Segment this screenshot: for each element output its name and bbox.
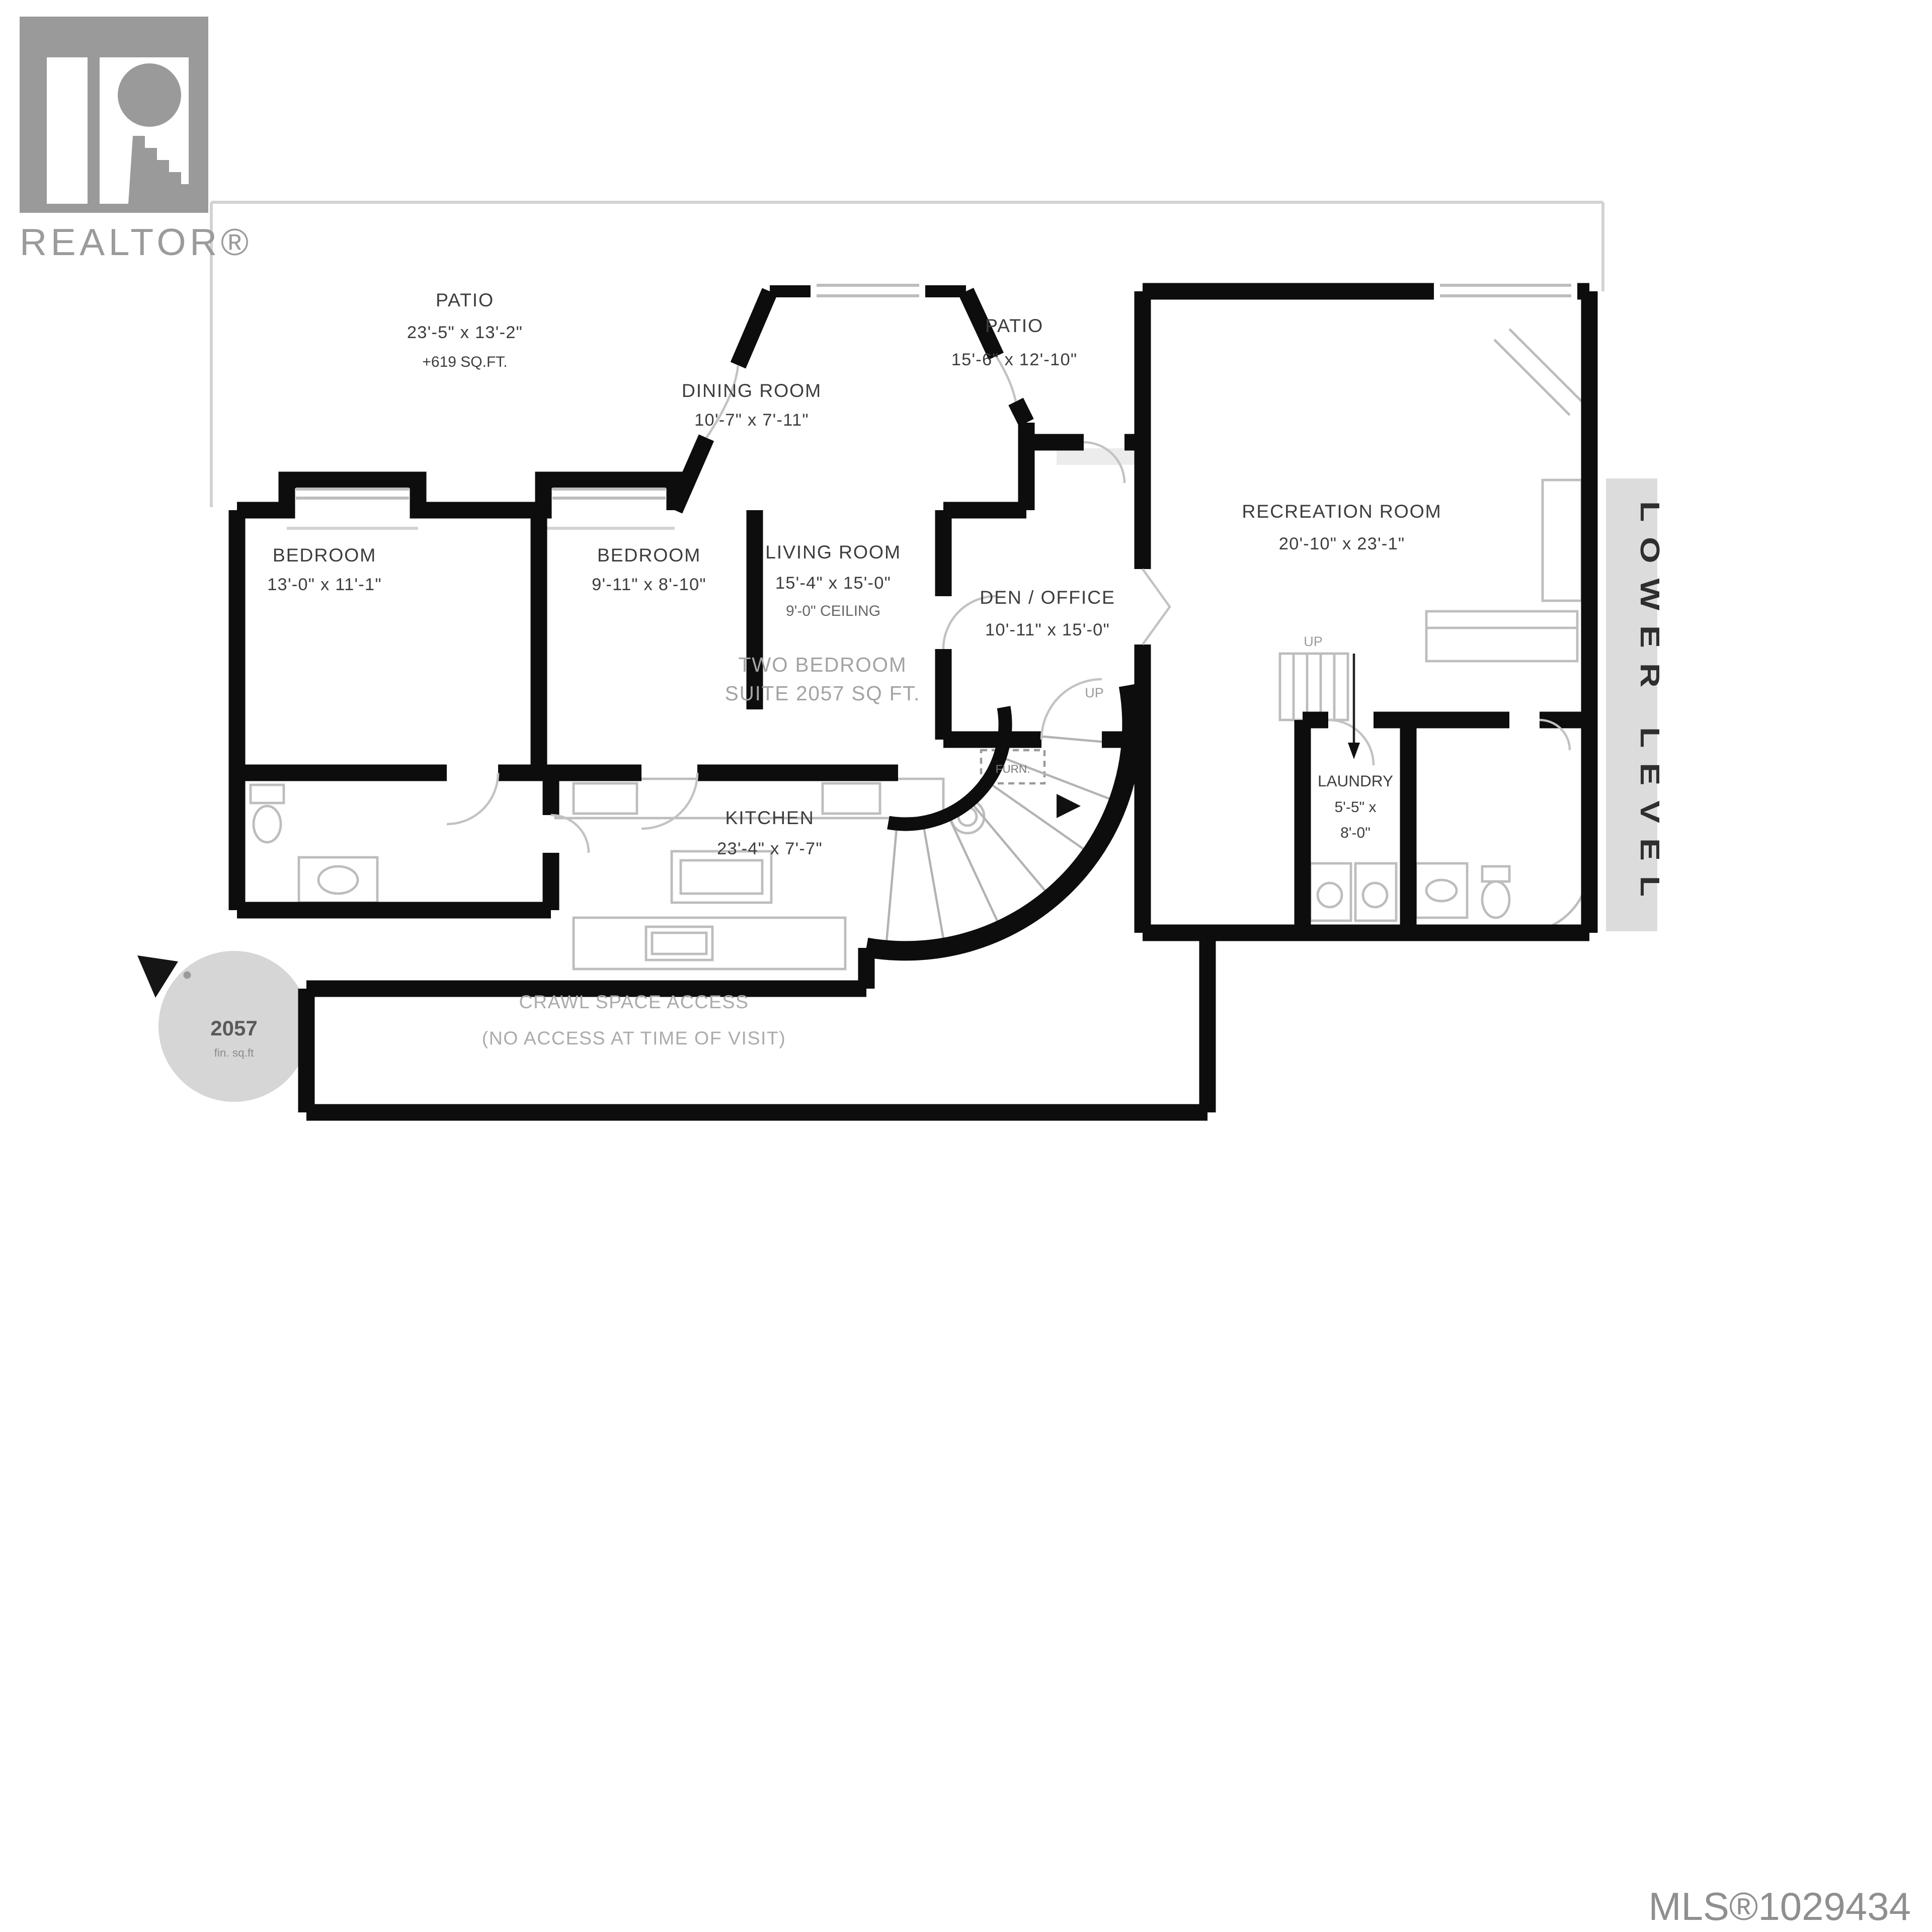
- realtor-logo-text: REALTOR®: [20, 221, 253, 263]
- living-name: LIVING ROOM: [765, 541, 901, 562]
- toilet-tank: [251, 785, 284, 803]
- living-dims: 15'-4" x 15'-0": [775, 574, 891, 593]
- washer-icon: [1310, 863, 1351, 921]
- recreation-dims: 20'-10" x 23'-1": [1279, 534, 1405, 553]
- suite-note-2: SUITE 2057 SQ FT.: [725, 682, 920, 705]
- bedroom1-dims: 13'-0" x 11'-1": [267, 575, 382, 594]
- windows: [296, 285, 1571, 498]
- patio-left-dims: 23'-5" x 13'-2": [407, 323, 523, 342]
- sink-icon: [318, 866, 358, 894]
- area-badge-value: 2057: [210, 1016, 257, 1040]
- den-name: DEN / OFFICE: [980, 587, 1115, 608]
- door-bedroom1: [447, 773, 498, 824]
- crawl-note-1: CRAWL SPACE ACCESS: [519, 991, 749, 1012]
- bath2-fixtures: [1416, 863, 1589, 933]
- curved-staircase: [866, 685, 1132, 951]
- patio-right-name: PATIO: [985, 315, 1043, 336]
- up-label-laundry: UP: [1304, 634, 1323, 649]
- mls-number: MLS®1029434: [1648, 1884, 1911, 1928]
- window-recreation: [1440, 285, 1571, 296]
- recreation-name: RECREATION ROOM: [1242, 501, 1441, 522]
- bedroom2-dims: 9'-11" x 8'-10": [592, 575, 706, 594]
- bathroom-fixtures: [251, 785, 377, 903]
- down-arrow-icon: [1348, 743, 1360, 759]
- recreation-fixtures: [1280, 329, 1582, 720]
- level-label: LOWER LEVEL: [1635, 501, 1665, 912]
- kitchen-dims: 23'-4" x 7'-7": [717, 839, 823, 858]
- door-bathroom: [551, 815, 589, 853]
- window-dining-bay: [817, 285, 919, 296]
- stair-annotations: [1348, 654, 1360, 759]
- laundry-dims-1: 5'-5" x: [1334, 799, 1376, 816]
- crawl-note-2: (NO ACCESS AT TIME OF VISIT): [482, 1027, 786, 1049]
- dining-name: DINING ROOM: [682, 380, 822, 401]
- cabinet: [1426, 611, 1577, 661]
- patio-right-dims: 15'-6" x 12'-10": [951, 350, 1078, 369]
- dining-dims: 10'-7" x 7'-11": [694, 411, 809, 430]
- suite-note-1: TWO BEDROOM: [739, 653, 907, 676]
- stove-icon: [574, 783, 637, 814]
- toilet2-tank: [1482, 866, 1509, 881]
- vanity: [299, 857, 377, 903]
- den-dims: 10'-11" x 15'-0": [985, 620, 1110, 639]
- floor-plan: PATIO 23'-5" x 13'-2" +619 SQ.FT. DINING…: [0, 0, 1932, 1932]
- toilet2-icon: [1482, 881, 1509, 918]
- patio-left-name: PATIO: [436, 289, 494, 310]
- patio-step: [1057, 448, 1143, 465]
- corner-fireplace: [1494, 329, 1582, 415]
- vanity2: [1416, 863, 1467, 918]
- laundry-name: LAUNDRY: [1318, 772, 1393, 790]
- kitchen-island: [672, 851, 771, 903]
- wall-bedrooms-top: [237, 480, 675, 510]
- fridge-icon: [823, 783, 880, 814]
- bedroom2-name: BEDROOM: [597, 544, 701, 566]
- laundry-fixtures: [1310, 863, 1396, 921]
- dryer-icon: [1355, 863, 1396, 921]
- up-label-stairs: UP: [1085, 685, 1104, 700]
- laundry-dims-2: 8'-0": [1340, 825, 1371, 841]
- patio-left-area: +619 SQ.FT.: [422, 354, 507, 370]
- bedroom1-name: BEDROOM: [273, 544, 376, 566]
- area-badge-unit: fin. sq.ft: [214, 1046, 255, 1059]
- shelf: [1543, 480, 1582, 601]
- opening-den-rec: [1143, 569, 1170, 645]
- sink2-icon: [1426, 880, 1457, 901]
- upper-stairs: [1280, 654, 1348, 720]
- window-bedroom1: [296, 489, 409, 498]
- furnace-label: FURN.: [996, 763, 1030, 775]
- stair-direction-arrow: [1057, 794, 1081, 818]
- window-bedroom2: [552, 489, 666, 498]
- level-ribbon: LOWER LEVEL: [1606, 478, 1665, 931]
- kitchen-counter-lower: [574, 918, 845, 969]
- shower-icon: [1521, 865, 1589, 933]
- door-bedroom2: [641, 773, 697, 829]
- living-ceiling: 9'-0" CEILING: [786, 603, 880, 619]
- realtor-logo: REALTOR®: [20, 17, 253, 263]
- kitchen-name: KITCHEN: [725, 807, 814, 828]
- toilet-icon: [254, 806, 281, 842]
